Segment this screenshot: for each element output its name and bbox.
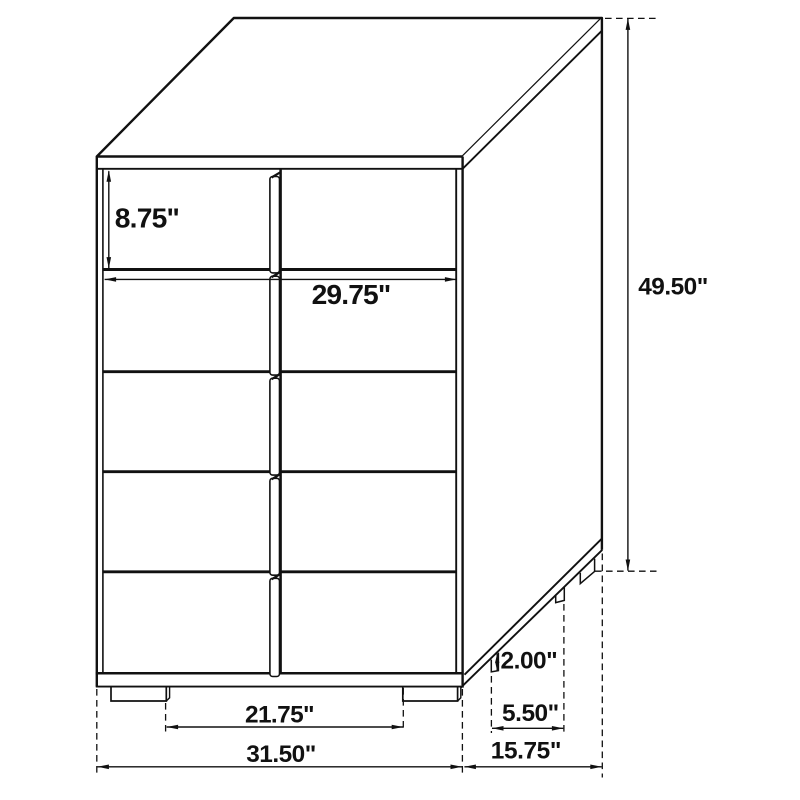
svg-text:49.50": 49.50" xyxy=(638,274,708,301)
svg-text:15.75": 15.75" xyxy=(491,737,561,764)
svg-text:29.75": 29.75" xyxy=(312,278,391,310)
svg-text:2.00": 2.00" xyxy=(501,648,558,675)
svg-text:21.75": 21.75" xyxy=(245,701,314,728)
svg-text:5.50": 5.50" xyxy=(502,700,559,727)
svg-text:31.50": 31.50" xyxy=(246,741,316,768)
svg-text:8.75": 8.75" xyxy=(115,201,179,233)
